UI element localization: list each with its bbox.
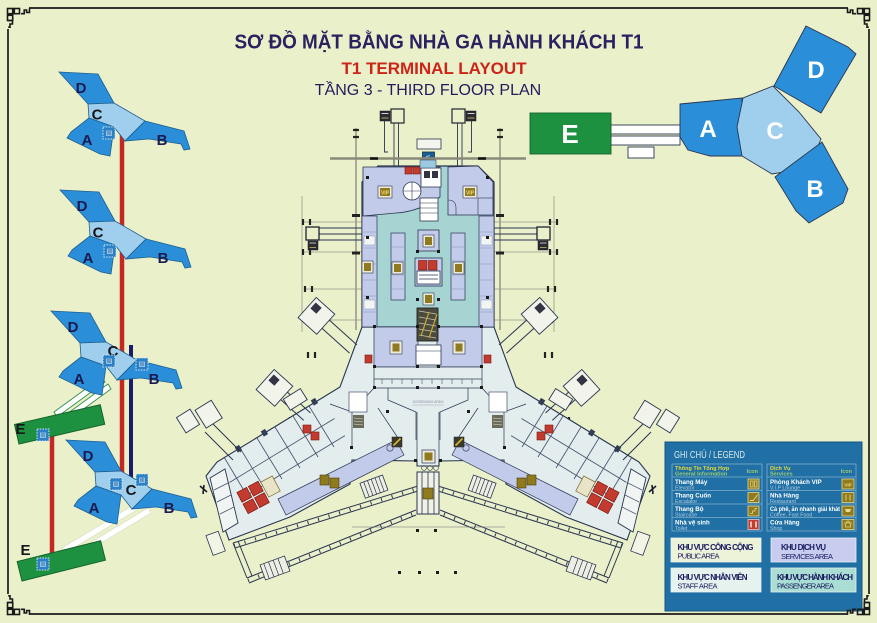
svg-text:E: E <box>20 542 30 559</box>
svg-text:SCREENING AREA: SCREENING AREA <box>412 400 444 404</box>
svg-text:T1 TERMINAL LAYOUT: T1 TERMINAL LAYOUT <box>341 59 527 78</box>
svg-text:C: C <box>126 482 137 499</box>
svg-text:C: C <box>766 118 783 145</box>
svg-text:E: E <box>15 421 25 438</box>
svg-text:KHU DỊCH VỤ: KHU DỊCH VỤ <box>781 543 826 552</box>
svg-text:STAFF AREA: STAFF AREA <box>678 582 718 591</box>
svg-text:V.I.P Lounge: V.I.P Lounge <box>770 486 800 492</box>
svg-text:PUBLIC AREA: PUBLIC AREA <box>678 552 720 561</box>
svg-text:VIP: VIP <box>844 483 851 488</box>
svg-text:PASSENGER AREA: PASSENGER AREA <box>777 582 834 591</box>
svg-text:VIP: VIP <box>381 191 390 197</box>
svg-text:VIP: VIP <box>466 191 475 197</box>
svg-text:GHI CHÚ / LEGEND: GHI CHÚ / LEGEND <box>674 448 745 461</box>
svg-text:SƠ ĐỒ MẶT BẰNG NHÀ GA HÀNH KHÁ: SƠ ĐỒ MẶT BẰNG NHÀ GA HÀNH KHÁCH T1 <box>235 30 644 54</box>
svg-text:Toilet: Toilet <box>675 526 688 532</box>
svg-text:Shop: Shop <box>770 526 782 532</box>
svg-text:Services: Services <box>770 472 793 478</box>
svg-text:Icon: Icon <box>841 469 853 475</box>
svg-text:Escalator: Escalator <box>675 499 697 505</box>
svg-text:General Information: General Information <box>675 472 728 478</box>
svg-text:C: C <box>92 107 103 124</box>
svg-text:E: E <box>561 119 578 149</box>
svg-text:B: B <box>806 176 823 203</box>
svg-text:SERVICES AREA: SERVICES AREA <box>781 552 833 561</box>
svg-text:Restaurant: Restaurant <box>770 499 796 505</box>
svg-text:Elevator: Elevator <box>675 486 695 492</box>
svg-text:Icon: Icon <box>747 469 759 475</box>
svg-text:D: D <box>807 57 824 84</box>
svg-text:Coffee, Fast Food: Coffee, Fast Food <box>770 513 812 519</box>
svg-text:TẦNG 3 - THIRD FLOOR PLAN: TẦNG 3 - THIRD FLOOR PLAN <box>315 80 541 99</box>
svg-text:C: C <box>93 225 104 242</box>
svg-text:A: A <box>699 116 716 143</box>
svg-text:Staircase: Staircase <box>675 513 697 519</box>
